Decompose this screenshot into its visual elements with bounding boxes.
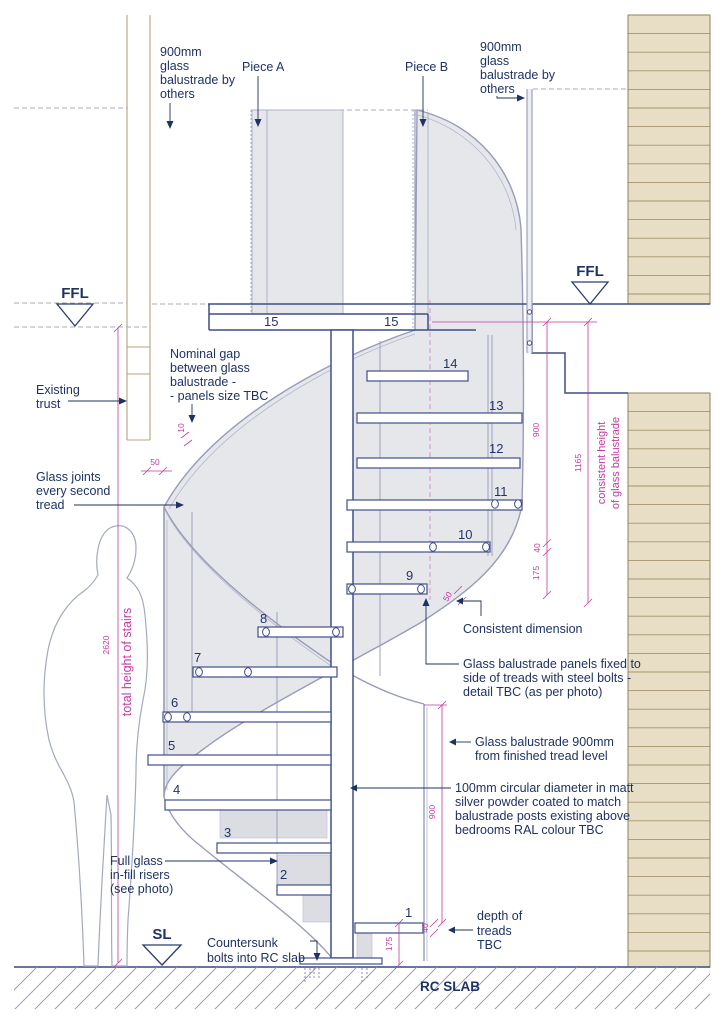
note-balustrade-top-left: 900mm glass balustrade by others: [160, 45, 236, 129]
tread-number-6: 6: [171, 695, 178, 710]
tread-5: [148, 755, 331, 765]
note-panels-fixed: Glass balustrade panels fixed to side of…: [423, 598, 641, 699]
tread-14: [367, 371, 468, 381]
dim-consistent-height-2: of glass balustrade: [610, 417, 622, 509]
svg-text:between glass: between glass: [170, 361, 250, 375]
down-arrow-icon: [167, 121, 174, 129]
tread-number-11: 11: [494, 484, 508, 499]
upper-glass-by-others: [527, 89, 532, 353]
tread-number-12: 12: [489, 441, 503, 456]
left-arrow-icon: [449, 739, 456, 746]
note-consistent-dimension: Consistent dimension: [456, 598, 583, 637]
tread-number-9: 9: [406, 568, 413, 583]
tread-12: [357, 458, 520, 468]
dim-consistent-height-1: consistent height: [596, 422, 608, 505]
svg-text:balustrade posts existing abov: balustrade posts existing above: [455, 809, 630, 823]
staircase-elevation-drawing: 2620 total height of stairs 10 50 900 40…: [0, 0, 724, 1024]
svg-text:100mm circular diameter in mat: 100mm circular diameter in matt: [455, 781, 634, 795]
right-arrow-icon: [119, 398, 127, 405]
svg-text:balustrade by: balustrade by: [160, 73, 236, 87]
tread-number-13: 13: [489, 398, 503, 413]
left-arrow-icon: [448, 927, 455, 934]
note-countersunk: Countersunk bolts into RC slab: [207, 936, 321, 965]
svg-text:depth of: depth of: [477, 909, 523, 923]
base-plate: [300, 958, 382, 964]
tread-number-15-right: 15: [384, 314, 398, 329]
sl-label: SL: [152, 926, 171, 943]
tread-number-4: 4: [173, 782, 180, 797]
svg-text:Countersunk: Countersunk: [207, 936, 279, 950]
tread-number-14: 14: [443, 356, 457, 371]
dim-40-upper: 40: [532, 543, 542, 553]
rc-slab-label: RC SLAB: [420, 979, 480, 994]
tread-number-8: 8: [260, 611, 267, 626]
tread-number-3: 3: [224, 825, 231, 840]
dim-175-lower: 175: [384, 937, 394, 951]
svg-text:Glass balustrade panels fixed: Glass balustrade panels fixed to: [463, 657, 641, 671]
svg-text:tread: tread: [36, 498, 65, 512]
svg-text:bedrooms RAL colour TBC: bedrooms RAL colour TBC: [455, 823, 604, 837]
tread-10: [347, 542, 490, 552]
svg-text:detail TBC (as per photo): detail TBC (as per photo): [463, 685, 602, 699]
svg-text:Glass balustrade 900mm: Glass balustrade 900mm: [475, 735, 614, 749]
dim-1165: 1165: [573, 454, 583, 473]
tread-number-5: 5: [168, 738, 175, 753]
note-full-glass: Full glass in-fill risers (see photo): [110, 854, 278, 896]
tread-number-2: 2: [280, 867, 287, 882]
dim-50-left: 50: [150, 457, 160, 467]
svg-text:bolts into RC slab: bolts into RC slab: [207, 951, 305, 965]
dim-900-upper: 900: [531, 423, 541, 437]
note-balustrade-900: Glass balustrade 900mm from finished tre…: [449, 735, 614, 763]
svg-text:Nominal gap: Nominal gap: [170, 347, 240, 361]
right-arrow-icon: [517, 95, 525, 102]
svg-text:glass: glass: [480, 54, 509, 68]
svg-text:Consistent dimension: Consistent dimension: [463, 622, 583, 636]
tread-8: [258, 627, 343, 637]
svg-text:from finished tread level: from finished tread level: [475, 749, 608, 763]
svg-text:in-fill risers: in-fill risers: [110, 868, 170, 882]
tread-number-1: 1: [405, 905, 412, 920]
svg-text:Glass joints: Glass joints: [36, 470, 101, 484]
svg-text:every second: every second: [36, 484, 110, 498]
note-existing-trust: Existing trust: [36, 383, 127, 411]
note-balustrade-top-right: 900mm glass balustrade by others: [480, 40, 556, 102]
svg-text:Piece B: Piece B: [405, 60, 448, 74]
svg-text:Existing: Existing: [36, 383, 80, 397]
dim-2620: 2620: [101, 635, 111, 654]
svg-text:trust: trust: [36, 397, 61, 411]
drawing-canvas: 2620 total height of stairs 10 50 900 40…: [0, 0, 724, 1024]
dim-175-upper: 175: [531, 566, 541, 580]
timber-wall: [628, 15, 710, 967]
svg-text:900mm: 900mm: [160, 45, 202, 59]
tread-number-15-left: 15: [264, 314, 278, 329]
down-arrow-icon: [189, 415, 196, 423]
tread-4: [165, 800, 331, 810]
tread-9: [347, 584, 427, 594]
svg-text:900mm: 900mm: [480, 40, 522, 54]
svg-text:others: others: [480, 82, 515, 96]
tread-2: [277, 885, 331, 895]
svg-text:(see photo): (see photo): [110, 882, 173, 896]
ffl-right-marker: [572, 282, 608, 304]
tread-number-10: 10: [458, 527, 472, 542]
human-figure: [44, 526, 147, 966]
svg-text:Full glass: Full glass: [110, 854, 163, 868]
svg-text:- panels size TBC: - panels size TBC: [170, 389, 268, 403]
svg-text:balustrade by: balustrade by: [480, 68, 556, 82]
tread-number-7: 7: [194, 650, 201, 665]
svg-text:silver powder coated to match: silver powder coated to match: [455, 795, 621, 809]
ffl-right-label: FFL: [576, 263, 604, 280]
tread-7: [193, 667, 337, 677]
dim-900-lower: 900: [427, 805, 437, 819]
note-100mm-post: 100mm circular diameter in matt silver p…: [350, 781, 634, 837]
svg-text:glass: glass: [160, 59, 189, 73]
existing-post: [127, 15, 150, 440]
ffl-left-label: FFL: [61, 285, 89, 302]
svg-text:treads: treads: [477, 924, 512, 938]
svg-text:TBC: TBC: [477, 938, 502, 952]
dim-10: 10: [176, 423, 186, 433]
svg-text:side of treads with steel bolt: side of treads with steel bolts -: [463, 671, 631, 685]
svg-text:Piece A: Piece A: [242, 60, 285, 74]
svg-text:others: others: [160, 87, 195, 101]
tread-1: [355, 923, 423, 933]
piece-a-panel: [251, 110, 343, 314]
dim-total-height-label: total height of stairs: [120, 608, 134, 716]
tread-3: [217, 843, 331, 853]
sl-marker: [143, 945, 181, 965]
note-glass-joints: Glass joints every second tread: [36, 470, 184, 512]
tread-13: [357, 413, 522, 423]
svg-text:balustrade -: balustrade -: [170, 375, 236, 389]
dim-40-lower: 40: [420, 923, 430, 933]
ffl-left-marker: [57, 304, 93, 326]
note-depth-of-treads: depth of treads TBC: [448, 909, 523, 952]
